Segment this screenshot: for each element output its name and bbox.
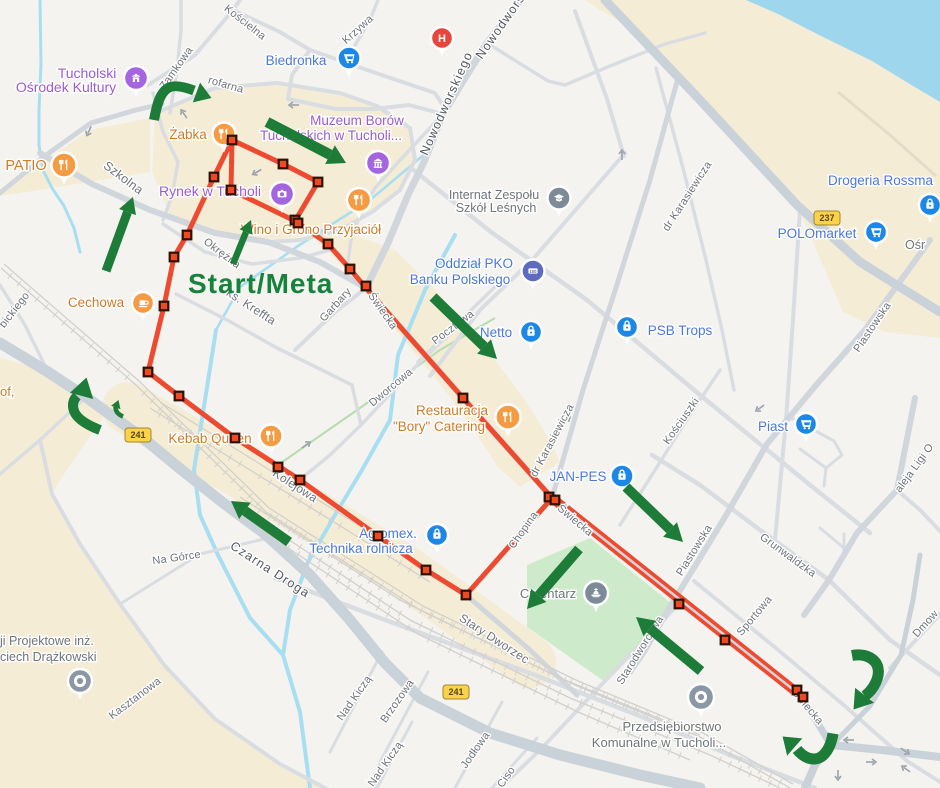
svg-text:Agromex.: Agromex. <box>359 526 417 541</box>
svg-text:PATIO: PATIO <box>5 158 46 174</box>
svg-text:Restauracja: Restauracja <box>416 403 489 418</box>
svg-text:Ośr: Ośr <box>905 238 925 252</box>
svg-text:241: 241 <box>130 430 145 440</box>
svg-text:Banku Polskiego: Banku Polskiego <box>410 272 511 287</box>
svg-text:Piast: Piast <box>758 419 788 434</box>
svg-text:Szkół Leśnych: Szkół Leśnych <box>456 201 537 215</box>
svg-text:PSB Trops: PSB Trops <box>648 323 713 338</box>
svg-text:Wino i Grono Przyjaciół: Wino i Grono Przyjaciół <box>241 222 381 237</box>
svg-text:Netto: Netto <box>480 325 512 340</box>
svg-text:Internat Zespołu: Internat Zespołu <box>449 188 539 202</box>
svg-text:Technika rolnicza: Technika rolnicza <box>309 541 413 556</box>
svg-text:JAN-PES: JAN-PES <box>549 469 606 484</box>
svg-text:Przedsiębiorstwo: Przedsiębiorstwo <box>623 719 722 734</box>
svg-text:Rynek w Tucholi: Rynek w Tucholi <box>159 183 261 199</box>
svg-text:Ośrodek Kultury: Ośrodek Kultury <box>16 79 116 95</box>
svg-text:ciech Drążkowski: ciech Drążkowski <box>0 650 97 664</box>
svg-text:Komunalne w Tucholi...: Komunalne w Tucholi... <box>592 735 726 750</box>
svg-text:ji Projektowe inż.: ji Projektowe inż. <box>0 634 94 648</box>
svg-text:H: H <box>438 33 446 45</box>
svg-text:Start/Meta: Start/Meta <box>188 268 333 299</box>
svg-text:Drogeria Rossma: Drogeria Rossma <box>828 173 934 188</box>
svg-text:Biedronka: Biedronka <box>266 53 327 68</box>
svg-text:"Bory" Catering: "Bory" Catering <box>393 419 485 434</box>
svg-text:Muzeum Borów: Muzeum Borów <box>310 113 404 128</box>
svg-text:Oddział PKO: Oddział PKO <box>435 256 513 271</box>
svg-text:Cechowa: Cechowa <box>68 295 125 310</box>
svg-text:Żabka: Żabka <box>169 127 207 142</box>
svg-text:of,: of, <box>0 384 14 399</box>
svg-text:100: 100 <box>530 269 538 274</box>
svg-text:241: 241 <box>448 687 463 697</box>
svg-text:POLOmarket: POLOmarket <box>778 226 857 241</box>
svg-text:237: 237 <box>819 213 834 223</box>
